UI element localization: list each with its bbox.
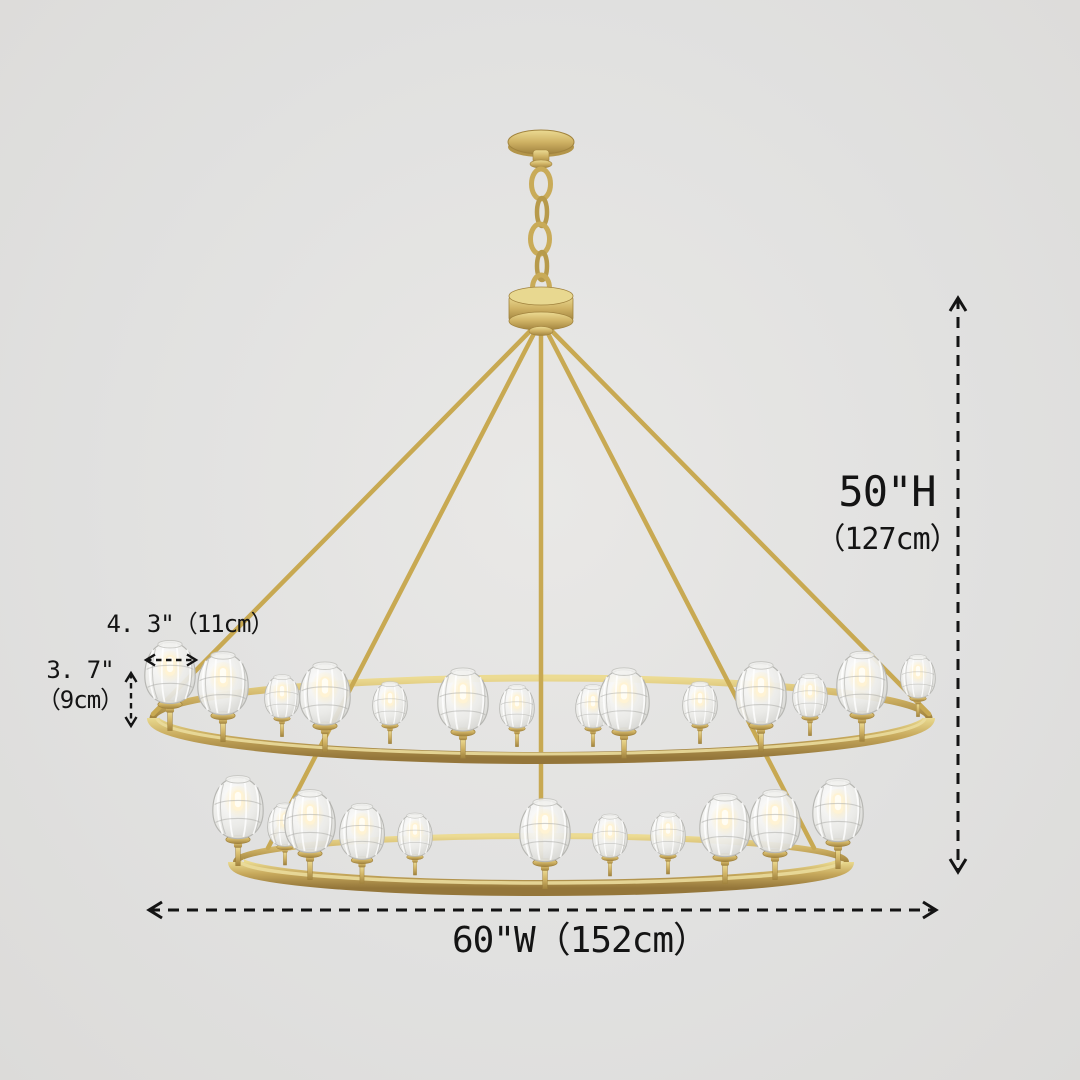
crystal-shade: [198, 652, 248, 742]
hanger-rod: [541, 320, 814, 848]
shade-height-value: 3. 7": [30, 657, 130, 684]
shade-height-metric-value: （9cm）: [30, 687, 130, 714]
crystal-shade: [593, 814, 628, 876]
height-dimension-label: 50"H （127cm）: [802, 468, 972, 557]
shade-width-dimension-label: 4. 3"（11cm）: [100, 611, 280, 638]
crystal-shade: [599, 668, 649, 758]
hanger-rods: [153, 320, 929, 858]
hanger-rod: [268, 320, 541, 848]
crystal-shade: [700, 794, 750, 884]
product-dimension-diagram: 50"H （127cm） 60"W（152cm） 4. 3"（11cm） 3. …: [0, 0, 1080, 1080]
crystal-shade: [340, 803, 385, 883]
height-metric-value: （127cm）: [802, 523, 972, 557]
ceiling-canopy: [508, 130, 574, 168]
crystal-shade: [651, 812, 686, 874]
shade-height-dimension-label: 3. 7" （9cm）: [30, 657, 130, 714]
crystal-shade: [500, 685, 535, 747]
crystal-shade: [300, 662, 350, 752]
crystal-shade: [683, 682, 718, 744]
crystal-shade: [373, 682, 408, 744]
hanging-chain: [531, 169, 551, 301]
support-hub: [509, 287, 573, 336]
crystal-shade: [736, 662, 786, 752]
crystal-shade: [438, 668, 488, 758]
height-value: 50"H: [802, 468, 972, 515]
crystal-shade: [813, 779, 863, 869]
crystal-shade: [793, 674, 828, 736]
crystal-shade: [265, 675, 300, 737]
crystal-shade: [398, 813, 433, 875]
crystal-shade: [750, 790, 800, 880]
crystal-shade: [520, 799, 570, 889]
crystal-shade: [285, 790, 335, 880]
width-dimension-label: 60"W（152cm）: [430, 921, 730, 961]
crystal-shade: [837, 651, 887, 741]
